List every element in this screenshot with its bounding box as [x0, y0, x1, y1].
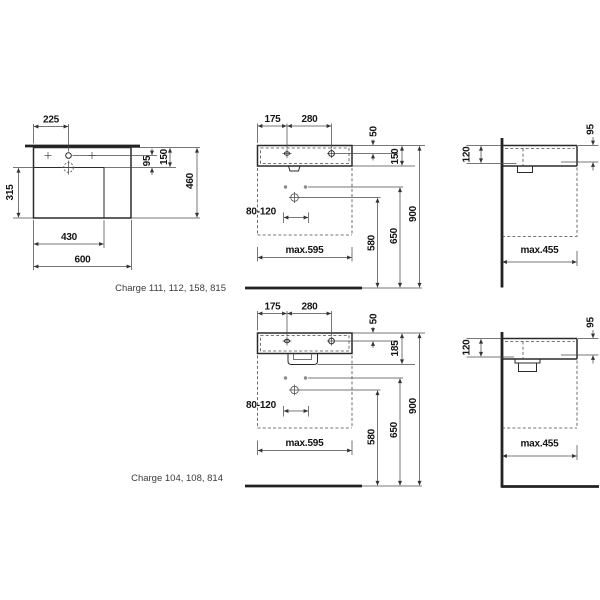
- dim-label-rim-thickness: 95: [586, 124, 597, 135]
- side-view-variant-a: 95 120 max.455: [462, 124, 599, 288]
- dim-label-rim-thickness: 95: [586, 317, 597, 328]
- alt-tap-hole-icon: [327, 337, 336, 346]
- drain-pipe-icon: [289, 192, 300, 203]
- drain-pipe-icon: [289, 385, 300, 396]
- dim-label-ledge-depth: 120: [462, 146, 473, 163]
- dim-label-drain-offset-range: 80-120: [246, 400, 277, 411]
- basin-inner-rim-dashed: [261, 336, 350, 352]
- dim-label-drain-offset-range: 80-120: [246, 207, 277, 218]
- dim-label-max-cabinet-depth: max.455: [520, 245, 559, 256]
- tap-hole-icon: [283, 337, 292, 346]
- tap-hole-icon: [66, 153, 72, 159]
- siphon-outline: [288, 354, 318, 365]
- mounting-hole: [284, 185, 287, 188]
- dim-label-edge-to-tap: 175: [264, 114, 281, 125]
- dim-label-rim-height: 900: [408, 397, 419, 414]
- front-view-variant-a: 175 280 50 150 80-120 max.595 580: [245, 114, 425, 288]
- dim-label-rim-to-tap: 50: [369, 126, 380, 137]
- dim-label-holes-height: 650: [389, 227, 400, 244]
- basin-inner-rim-dashed: [261, 148, 350, 164]
- dim-label-max-cabinet-width: max.595: [285, 438, 324, 449]
- dim-label-rim-height: 900: [408, 205, 419, 222]
- mounting-hole: [284, 376, 287, 379]
- washbasin-dimension-drawing: 225 95 150 460 315 430 600: [0, 0, 600, 600]
- dim-label-holes-height: 650: [389, 421, 400, 438]
- mounting-hole: [304, 376, 307, 379]
- front-view-variant-b: 175 280 50 185 80-120 max.595 580: [245, 302, 425, 487]
- plan-view: 225 95 150 460 315 430 600: [5, 115, 200, 271]
- dim-label-plan-tap-offset: 225: [43, 115, 60, 126]
- dim-label-plan-width: 600: [74, 255, 91, 266]
- dim-label-edge-to-tap: 175: [264, 302, 281, 313]
- dim-label-body-height: 150: [390, 148, 401, 165]
- alt-tap-hole-icon: [327, 149, 336, 158]
- alt-tap-position-cross-left: [45, 152, 52, 159]
- side-view-variant-b: 95 120 max.455: [462, 317, 600, 488]
- dim-label-plan-tap-to-drain: 95: [142, 155, 153, 166]
- technical-drawing-page: 225 95 150 460 315 430 600: [0, 0, 600, 600]
- dim-label-plan-bowl-width: 430: [61, 232, 78, 243]
- dim-label-tap-spacing: 280: [301, 302, 318, 313]
- dim-label-drain-height: 580: [367, 428, 378, 445]
- dim-label-max-cabinet-width: max.595: [285, 245, 324, 256]
- drain-fitting: [518, 166, 533, 173]
- drain-fitting: [515, 359, 540, 372]
- dim-label-plan-rim-to-drain: 150: [159, 148, 170, 165]
- dim-label-plan-depth: 460: [185, 172, 196, 189]
- caption-variant-b: Charge 104, 108, 814: [131, 473, 223, 484]
- dim-label-rim-to-tap: 50: [369, 313, 380, 324]
- dim-label-plan-bowl-depth: 315: [5, 184, 16, 201]
- basin-front-outline: [258, 333, 353, 354]
- drain-icon: [62, 161, 76, 175]
- mounting-hole: [304, 185, 307, 188]
- dim-label-body-height: 185: [390, 340, 401, 357]
- bowl-outline: [34, 168, 105, 219]
- dim-label-max-cabinet-depth: max.455: [520, 439, 559, 450]
- basin-front-outline: [258, 146, 353, 167]
- dim-label-drain-height: 580: [367, 234, 378, 251]
- dim-label-ledge-depth: 120: [462, 339, 473, 356]
- caption-variant-a: Charge 111, 112, 158, 815: [115, 283, 226, 294]
- tap-hole-icon: [283, 149, 292, 158]
- dim-label-tap-spacing: 280: [301, 114, 318, 125]
